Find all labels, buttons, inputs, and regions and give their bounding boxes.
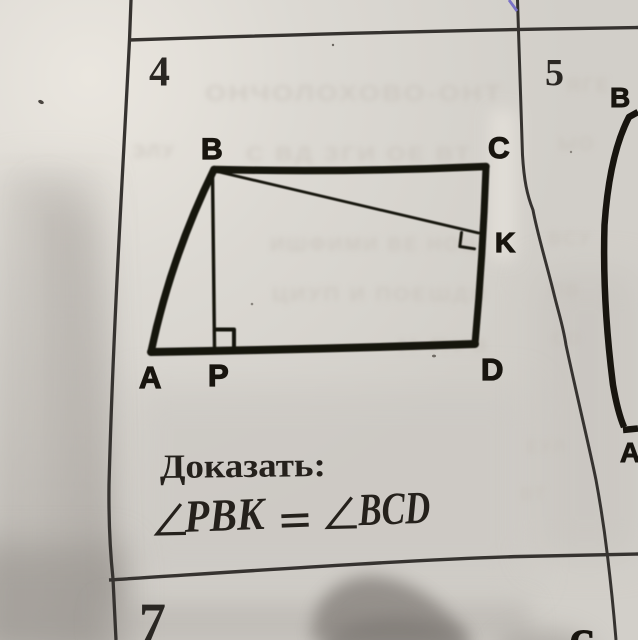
- svg-text:4: 4: [149, 50, 170, 96]
- svg-text:7: 7: [139, 592, 166, 640]
- svg-text:Доказать:: Доказать:: [160, 447, 326, 486]
- svg-text:C: C: [488, 132, 510, 165]
- svg-text:A: A: [139, 360, 161, 395]
- svg-text:B: B: [610, 82, 630, 113]
- svg-text:C: C: [570, 624, 595, 640]
- svg-text:A: A: [620, 437, 638, 468]
- svg-text:B: B: [201, 133, 223, 166]
- svg-text:5: 5: [545, 52, 564, 94]
- svg-text:P: P: [208, 358, 229, 393]
- svg-text:PBK: PBK: [182, 488, 268, 542]
- svg-text:ОНЧОЛОХОВО-ОНТ: ОНЧОЛОХОВО-ОНТ: [205, 80, 503, 106]
- svg-text:ЭЛУ: ЭЛУ: [132, 142, 176, 163]
- svg-text:С ВД ЗГИ ОЕ ВТ: С ВД ЗГИ ОЕ ВТ: [246, 143, 472, 166]
- svg-text:ЕУЛ: ЕУЛ: [526, 437, 567, 457]
- svg-text:ИШФИМИ ВЕ НОЦ: ИШФИМИ ВЕ НОЦ: [270, 234, 478, 256]
- svg-text:ВТ: ВТ: [520, 484, 547, 504]
- svg-text:ЯГЕ: ЯГЕ: [566, 75, 611, 97]
- svg-text:D: D: [481, 352, 503, 387]
- svg-text:ЫО: ЫО: [558, 134, 595, 155]
- svg-text:ВСУ: ВСУ: [548, 229, 592, 250]
- svg-text:K: K: [495, 227, 515, 258]
- svg-text:BCD: BCD: [356, 482, 431, 536]
- svg-text:ЦИУП И ПОЕШДИ: ЦИУП И ПОЕШДИ: [272, 284, 488, 306]
